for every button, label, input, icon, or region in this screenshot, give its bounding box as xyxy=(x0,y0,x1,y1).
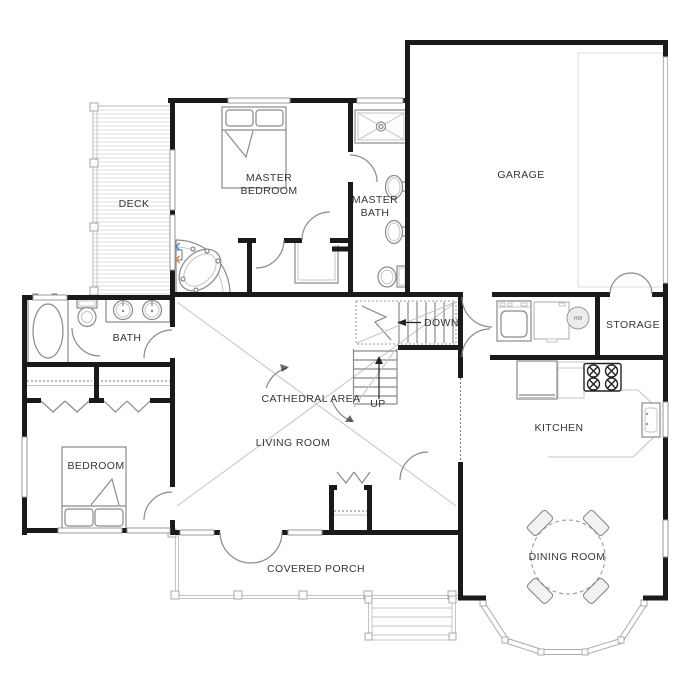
double-vanity xyxy=(106,299,170,322)
shower xyxy=(355,110,407,143)
washer xyxy=(497,301,531,341)
bifold-door-icon xyxy=(337,472,370,483)
bedroom-label: BEDROOM xyxy=(67,460,124,472)
window xyxy=(22,437,27,497)
kitchen-label: KITCHEN xyxy=(535,422,584,434)
stairs-down-label: DOWN xyxy=(424,317,459,329)
dining-room-area xyxy=(480,509,647,655)
sink xyxy=(386,221,408,244)
window xyxy=(33,295,67,300)
garage-label: GARAGE xyxy=(497,169,544,181)
window xyxy=(58,528,122,533)
kitchen-area xyxy=(517,361,660,457)
entry-door-arc xyxy=(220,532,251,563)
linen-closet xyxy=(295,243,338,283)
covered-porch-area xyxy=(168,529,459,640)
garage-door xyxy=(664,57,668,283)
living-room-label: LIVING ROOM xyxy=(256,437,330,449)
door-arc xyxy=(462,297,492,327)
kitchen-sink xyxy=(642,403,660,437)
bath-label: BATH xyxy=(113,332,142,344)
window xyxy=(357,98,403,103)
bay-window xyxy=(480,600,647,655)
toilet xyxy=(77,299,97,327)
floor-plan-canvas: DECK MASTER BEDROOM MASTER BATH GARAGE S… xyxy=(0,0,700,700)
porch-steps xyxy=(365,596,456,640)
coat-closet xyxy=(334,472,370,515)
window xyxy=(663,402,668,437)
door-arc xyxy=(256,240,284,268)
bath-fixtures xyxy=(28,294,170,363)
double-door-arc xyxy=(610,273,631,294)
window xyxy=(180,530,214,535)
door-arc xyxy=(72,328,100,356)
double-door-arc xyxy=(631,273,652,294)
stairs-up-label: UP xyxy=(370,398,385,410)
dryer xyxy=(534,302,569,342)
corner-tub xyxy=(171,240,230,299)
master-bath-label: BATH xyxy=(361,207,390,219)
dining-room-label: DINING ROOM xyxy=(529,551,606,563)
window xyxy=(228,98,290,103)
window xyxy=(127,528,170,533)
window xyxy=(663,520,668,557)
covered-porch-label: COVERED PORCH xyxy=(267,563,365,575)
refrigerator xyxy=(517,361,557,399)
toilet xyxy=(378,266,407,287)
door-arc xyxy=(144,492,172,520)
bathtub xyxy=(28,294,68,363)
floor-plan-page: DECK MASTER BEDROOM MASTER BATH GARAGE S… xyxy=(0,0,700,700)
entry-door-arc xyxy=(251,532,282,563)
window xyxy=(170,150,175,210)
master-bath-label: MASTER xyxy=(352,194,398,206)
master-bedroom-label: BEDROOM xyxy=(240,185,297,197)
door-arc xyxy=(462,329,490,357)
water-heater-label: HW xyxy=(574,316,583,322)
master-bedroom-label: MASTER xyxy=(246,172,292,184)
cathedral-area-label: CATHEDRAL AREA xyxy=(262,393,361,405)
deck-label: DECK xyxy=(119,198,150,210)
storage-label: STORAGE xyxy=(606,319,660,331)
door-arc xyxy=(144,330,172,358)
window xyxy=(170,215,175,270)
door-arc xyxy=(302,212,330,240)
stove xyxy=(584,364,621,392)
door-arc xyxy=(350,155,377,182)
window xyxy=(288,530,322,535)
garage-area xyxy=(578,53,663,287)
